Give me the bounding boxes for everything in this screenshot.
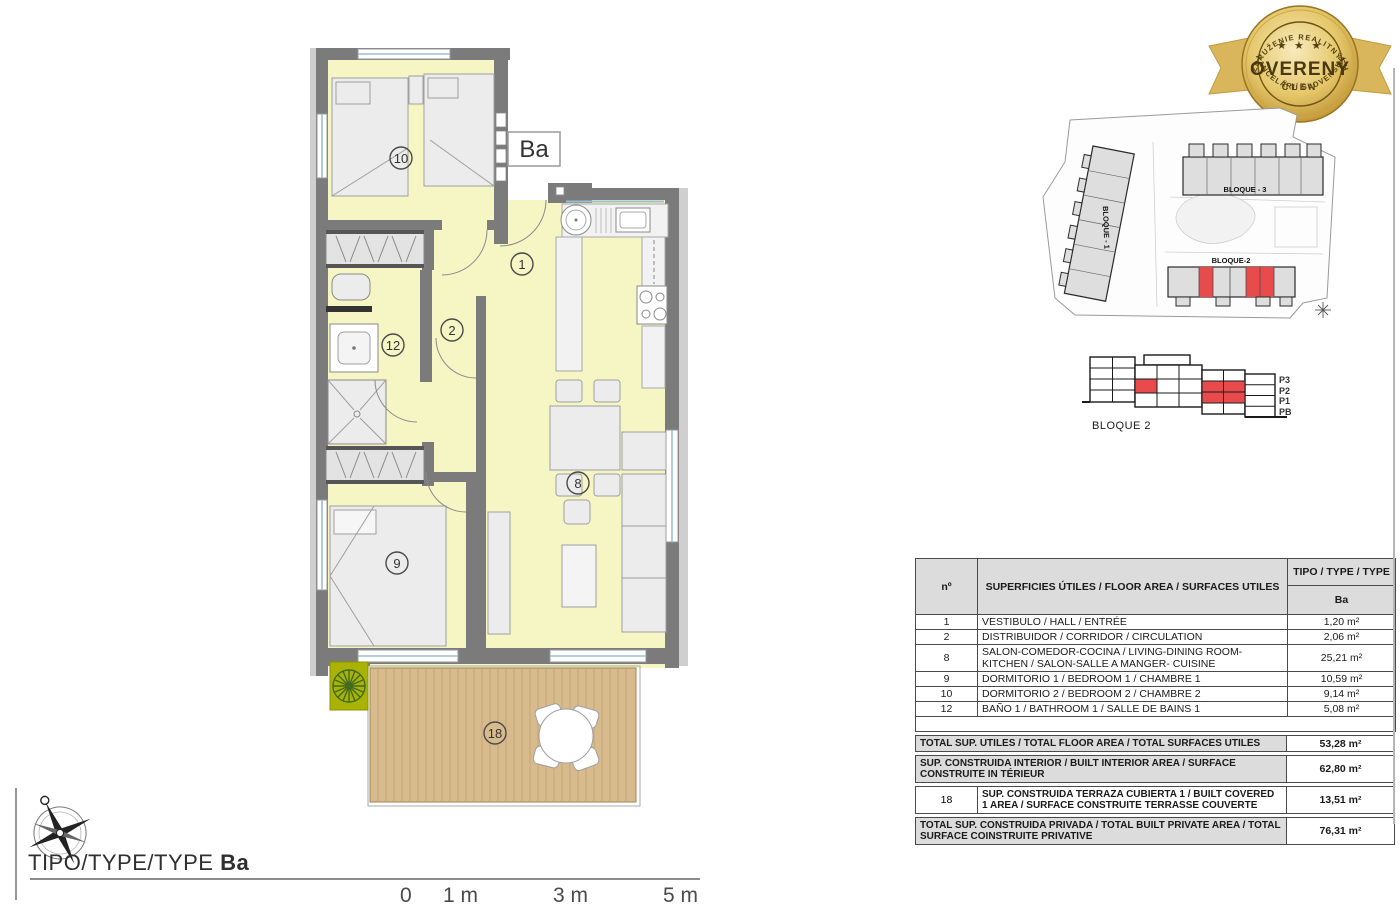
bloque3-label: BLOQUE - 3 <box>1224 185 1267 194</box>
page-left-edge-line <box>15 788 17 900</box>
col-header-type: TIPO / TYPE / TYPE <box>1288 559 1396 586</box>
site-plan: BLOQUE - 1 BLOQUE - 3 BLOQUE-2 <box>1035 102 1345 337</box>
room-number-terrace: 18 <box>488 726 502 741</box>
room-number-corridor: 2 <box>448 323 455 338</box>
plan-type-value: Ba <box>220 850 249 875</box>
table-row: 2 DISTRIBUIDOR / CORRIDOR / CIRCULATION … <box>916 630 1396 645</box>
badge-stars-icon: ★ ★ ★ <box>1277 39 1324 52</box>
room-number-hall: 1 <box>518 257 525 272</box>
table-row: 12 BAÑO 1 / BATHROOM 1 / SALLE DE BAINS … <box>916 702 1396 717</box>
table-spacer-row <box>916 717 1396 732</box>
highlighted-unit <box>1199 267 1213 297</box>
room-number-bedroom2: 10 <box>394 151 408 166</box>
floor-label-p3: P3 <box>1279 375 1290 385</box>
floor-label-pb: PB <box>1279 407 1292 417</box>
summary-row-built-interior: SUP. CONSTRUIDA INTERIOR / BUILT INTERIO… <box>915 755 1395 783</box>
table-row: 10 DORMITORIO 2 / BEDROOM 2 / CHAMBRE 2 … <box>916 687 1396 702</box>
summary-row-total-utiles: TOTAL SUP. UTILES / TOTAL FLOOR AREA / T… <box>915 735 1395 752</box>
table-row: 9 DORMITORIO 1 / BEDROOM 1 / CHAMBRE 1 1… <box>916 672 1396 687</box>
type-value-cell: Ba <box>1288 586 1396 615</box>
table-row: 1 VESTIBULO / HALL / ENTRÉE 1,20 m² <box>916 615 1396 630</box>
room-number-bathroom: 12 <box>386 338 400 353</box>
badge-subtitle: ČLEN <box>1282 81 1319 92</box>
floor-label-p2: P2 <box>1279 386 1290 396</box>
plan-type-prefix: TIPO/TYPE/TYPE <box>28 850 220 875</box>
scale-tick-1m: 1 m <box>443 884 478 908</box>
scale-tick-5m: 5 m <box>663 884 698 908</box>
bloque1-label: BLOQUE - 1 <box>1101 206 1111 249</box>
elevation-title: BLOQUE 2 <box>1092 420 1151 432</box>
room-number-living: 8 <box>574 476 581 491</box>
type-label: Ba <box>519 136 549 163</box>
highlighted-floor-unit <box>1135 379 1157 393</box>
badge-title: OVERENÝ <box>1250 58 1350 80</box>
scale-tick-3m: 3 m <box>553 884 588 908</box>
room-number-bedroom1: 9 <box>393 556 400 571</box>
title-underline <box>30 878 700 880</box>
scale-tick-0: 0 <box>400 884 412 908</box>
areas-table: nº SUPERFICIES ÚTILES / FLOOR AREA / SUR… <box>915 558 1397 848</box>
page-right-edge-line <box>1393 68 1395 824</box>
summary-row-total-private: TOTAL SUP. CONSTRUIDA PRIVADA / TOTAL BU… <box>915 817 1395 845</box>
site-compass-icon <box>1315 302 1331 318</box>
table-row: 8 SALON-COMEDOR-COCINA / LIVING-DINING R… <box>916 645 1396 672</box>
bloque2-label: BLOQUE-2 <box>1212 256 1251 265</box>
col-header-description: SUPERFICIES ÚTILES / FLOOR AREA / SURFAC… <box>978 559 1288 615</box>
floorplan-page: { "floor_plan": { "type_label": "Ba", "r… <box>0 0 1400 900</box>
floor-label-p1: P1 <box>1279 396 1290 406</box>
floor-plan-drawing: 10 1 2 12 9 8 18 Ba <box>310 28 710 808</box>
col-header-number: nº <box>916 559 978 615</box>
table-header-row: nº SUPERFICIES ÚTILES / FLOOR AREA / SUR… <box>916 559 1396 586</box>
areas-main-table: nº SUPERFICIES ÚTILES / FLOOR AREA / SUR… <box>915 558 1396 732</box>
plan-type-title: TIPO/TYPE/TYPE Ba <box>28 850 249 876</box>
building-elevation: P3 P2 P1 PB BLOQUE 2 <box>1082 352 1312 434</box>
summary-row-terrace: 18 SUP. CONSTRUIDA TERRAZA CUBIERTA 1 / … <box>915 786 1395 814</box>
